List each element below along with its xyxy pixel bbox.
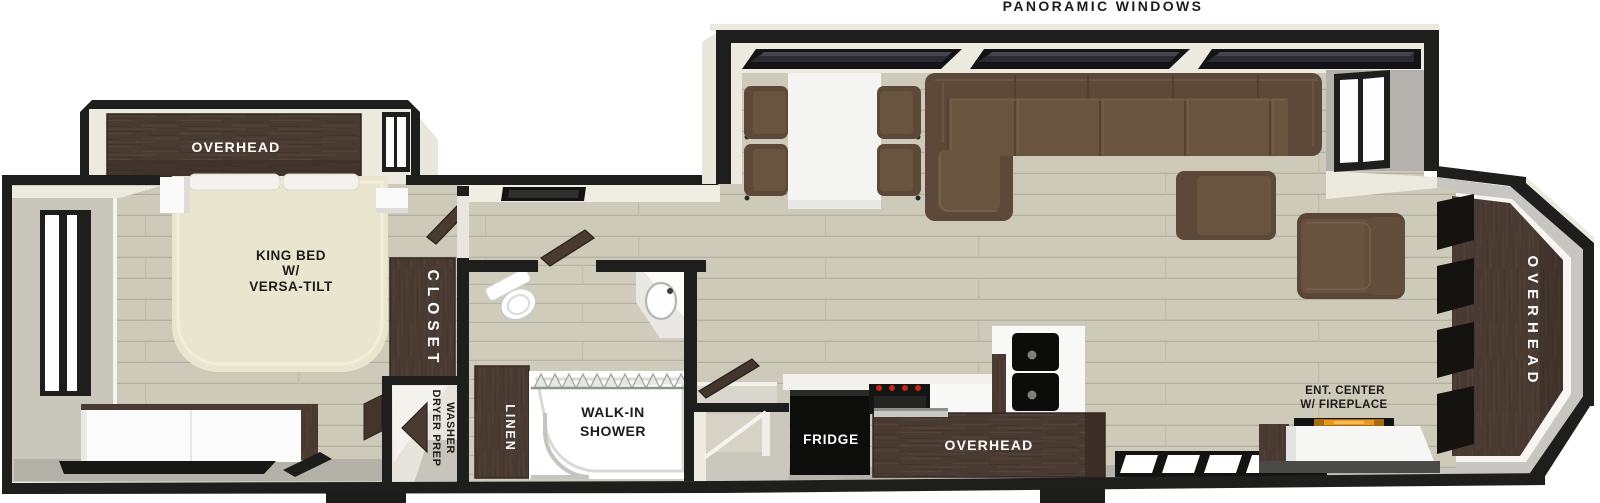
svg-text:SHOWER: SHOWER — [580, 423, 646, 439]
svg-text:W/: W/ — [282, 263, 300, 278]
svg-text:PANORAMIC WINDOWS: PANORAMIC WINDOWS — [1003, 0, 1204, 14]
svg-text:OVERHEAD: OVERHEAD — [945, 437, 1034, 453]
svg-text:OVERHEAD: OVERHEAD — [1524, 255, 1541, 388]
svg-text:WALK-IN: WALK-IN — [581, 404, 644, 420]
svg-text:ENT. CENTER: ENT. CENTER — [1305, 385, 1385, 397]
svg-text:CLOSET: CLOSET — [424, 270, 441, 369]
svg-text:FRIDGE: FRIDGE — [803, 432, 859, 447]
svg-text:OVERHEAD: OVERHEAD — [192, 139, 281, 155]
svg-text:W/ FIREPLACE: W/ FIREPLACE — [1300, 399, 1387, 411]
svg-text:LINEN: LINEN — [503, 404, 517, 452]
svg-text:DRYER PREP: DRYER PREP — [430, 389, 442, 466]
svg-text:KING BED: KING BED — [256, 248, 326, 263]
svg-text:VERSA-TILT: VERSA-TILT — [249, 279, 333, 294]
svg-text:WASHER: WASHER — [444, 402, 456, 454]
